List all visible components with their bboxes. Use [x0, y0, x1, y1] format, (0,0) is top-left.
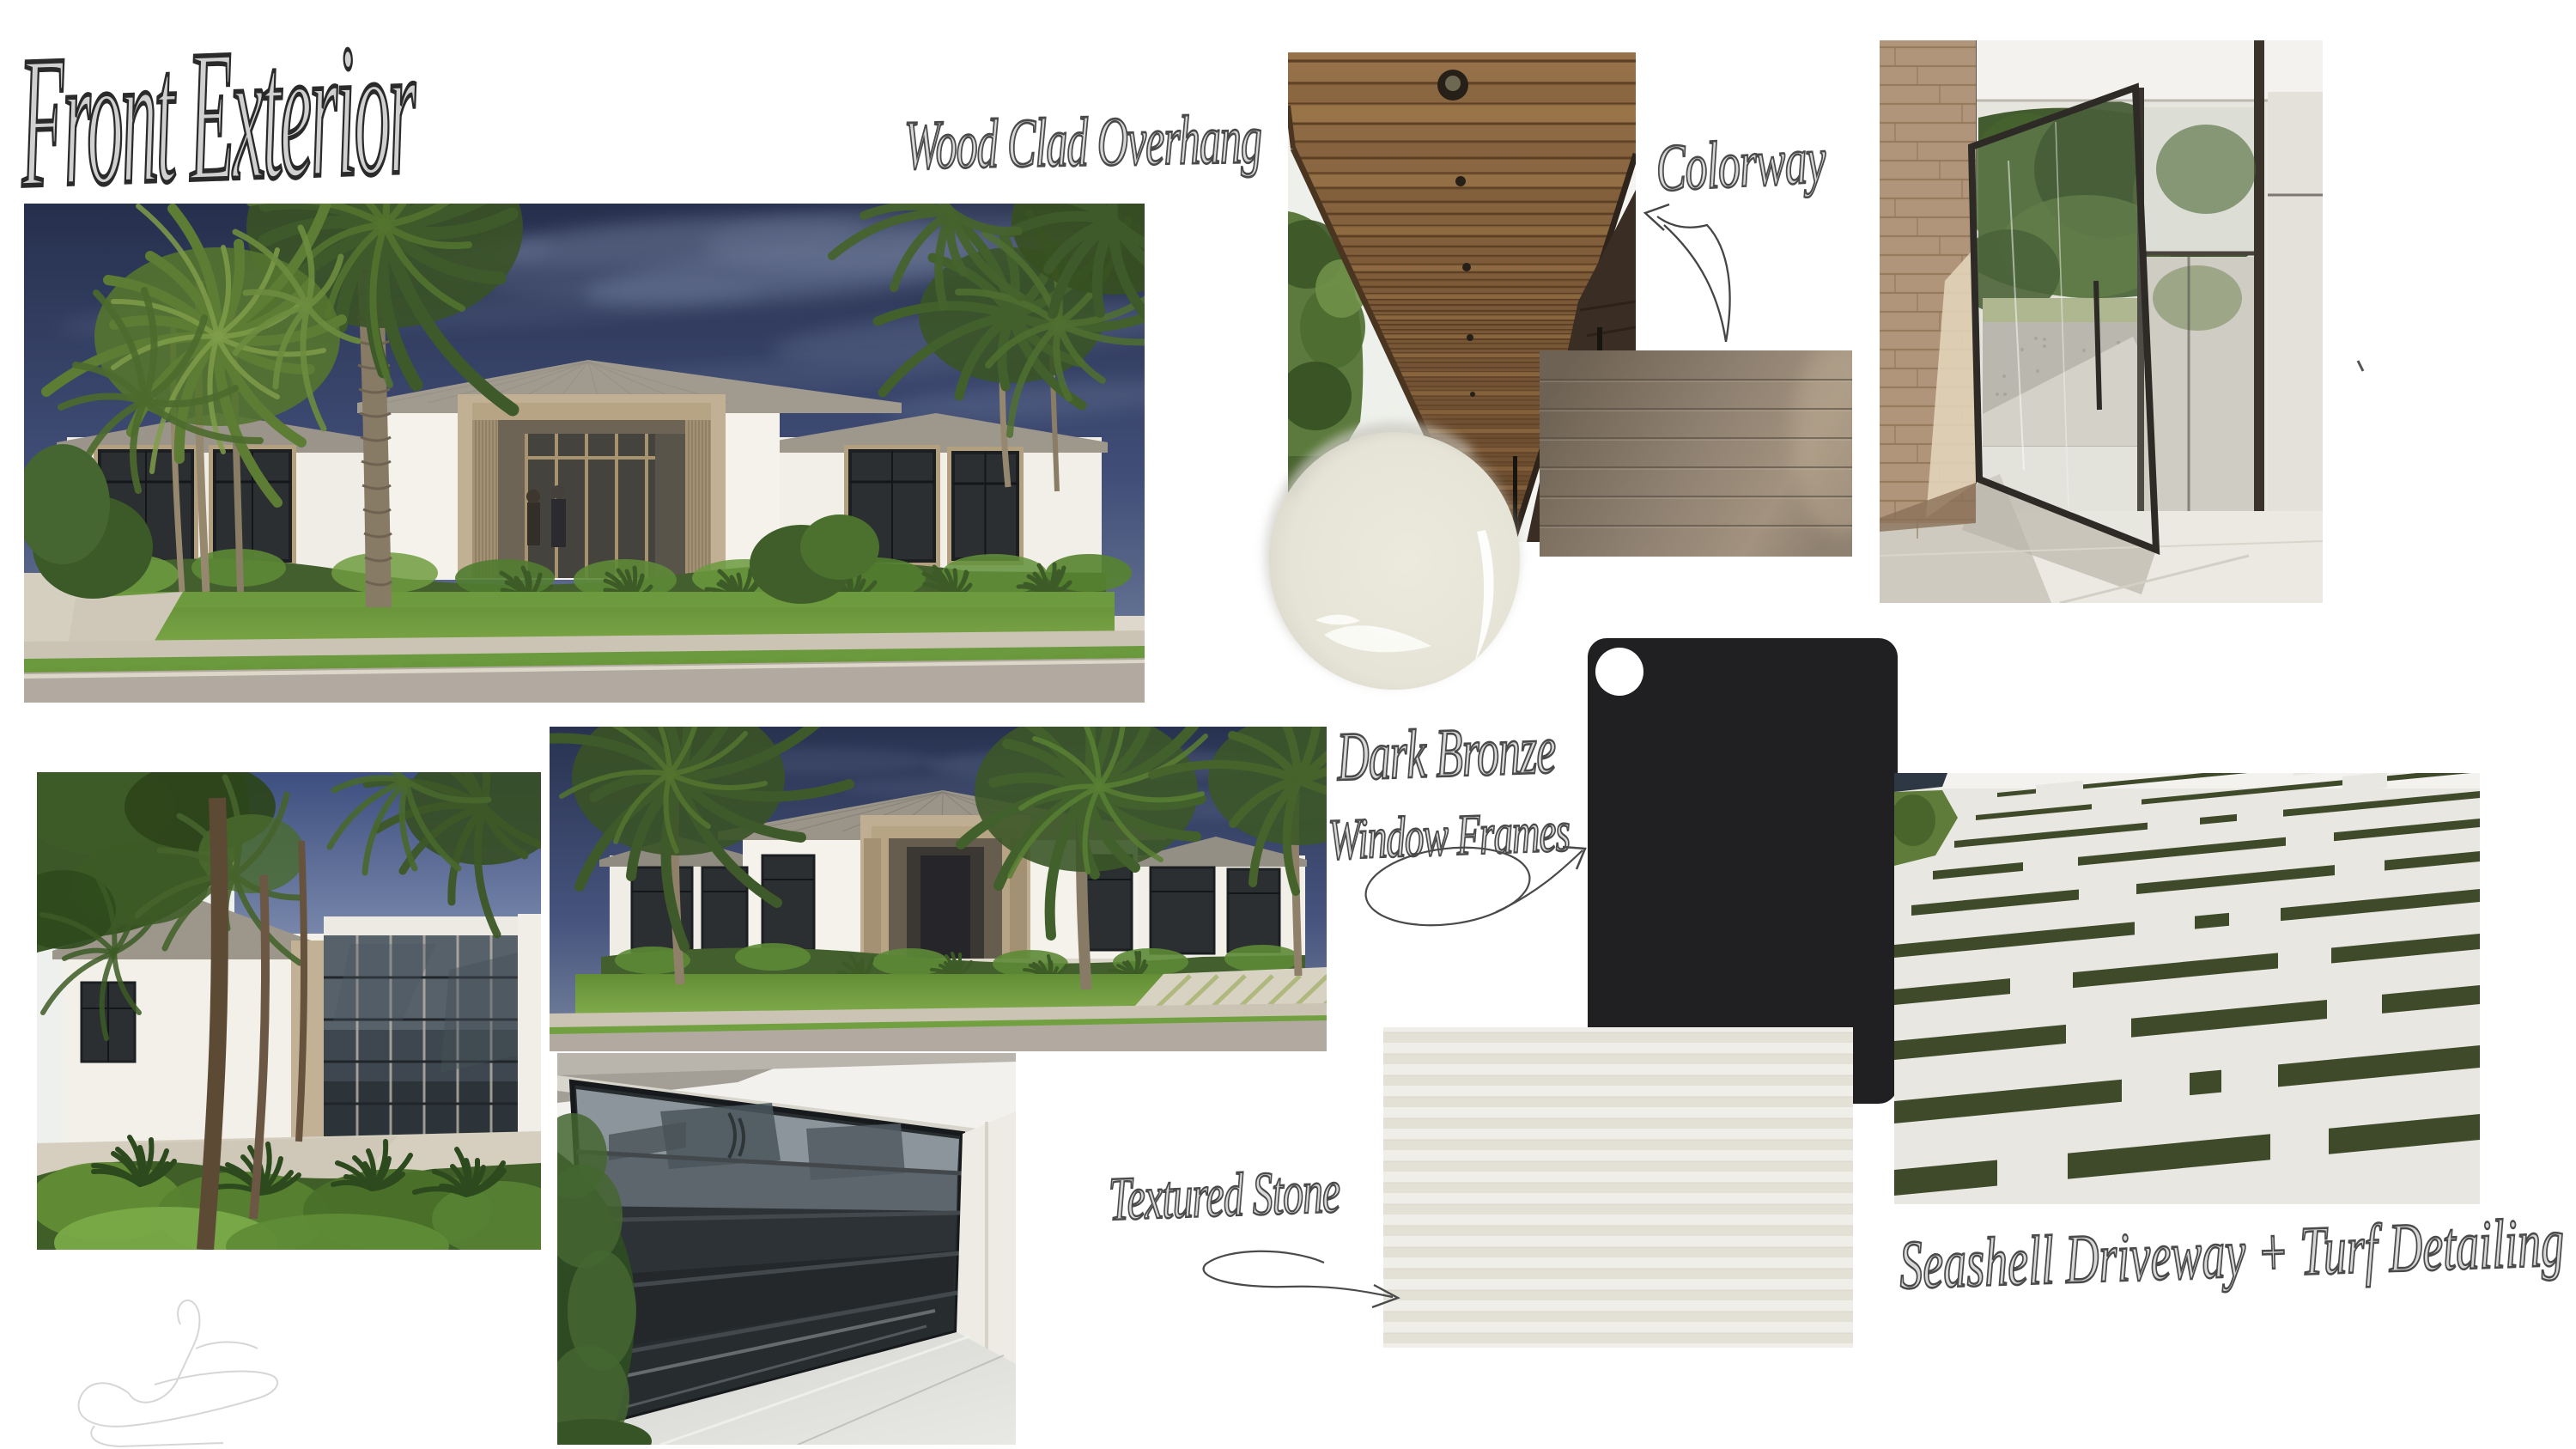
svg-text:Dark Bronze: Dark Bronze: [1335, 711, 1557, 795]
svg-text:Colorway: Colorway: [1654, 123, 1828, 205]
svg-text:Front Exterior: Front Exterior: [16, 5, 421, 227]
svg-text:Wood Clad Overhang: Wood Clad Overhang: [904, 100, 1262, 184]
svg-text:Seashell Driveway + Turf Detai: Seashell Driveway + Turf Detailing: [1898, 1203, 2565, 1303]
svg-text:Window Frames: Window Frames: [1327, 800, 1571, 872]
svg-text:Textured Stone: Textured Stone: [1108, 1157, 1341, 1233]
